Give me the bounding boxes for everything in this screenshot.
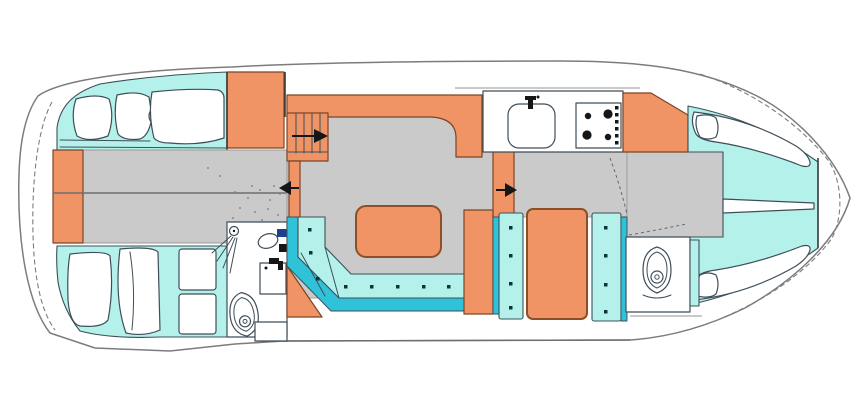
starboard-walkway-floor [514,152,627,217]
deck-edge-line [283,340,630,341]
stove-icon [576,103,621,148]
burner-large [603,109,612,118]
seat-base-port [464,210,493,314]
burner-small [585,113,591,119]
seat-trim-port [493,217,499,314]
entry-step [255,322,287,341]
pillow [115,93,151,140]
pillow [696,115,718,139]
duvet [150,89,224,143]
boat-floorplan-screenshot: Aft cabin with two double berths and war… [0,0,859,411]
boat-floor-plan: Aft cabin with two double berths and war… [0,0,859,411]
aft-vanity-seat [179,294,216,334]
washbasin-icon [260,258,286,294]
aft-cabinet-port [53,150,83,243]
companionway-stairs [287,113,328,161]
pillow [68,252,112,326]
aft-vanity-top [179,249,216,290]
burner-large [582,130,591,139]
berth-side-strip [690,240,699,306]
duvet [118,248,160,334]
aft-wardrobe [227,72,284,148]
room-mid-seating: Mid cabin with facing settees and cabine… [464,209,627,321]
burner-small [605,134,611,140]
bow-passage-step [493,150,514,218]
bow-entrance-floor [627,152,723,237]
room-galley: Galley with sink and four-burner stove [483,91,623,152]
pillow [73,96,112,140]
room-bow-head: Bow bathroom with toilet [626,237,702,316]
dining-table [356,206,441,257]
mid-cabinet [527,209,587,319]
